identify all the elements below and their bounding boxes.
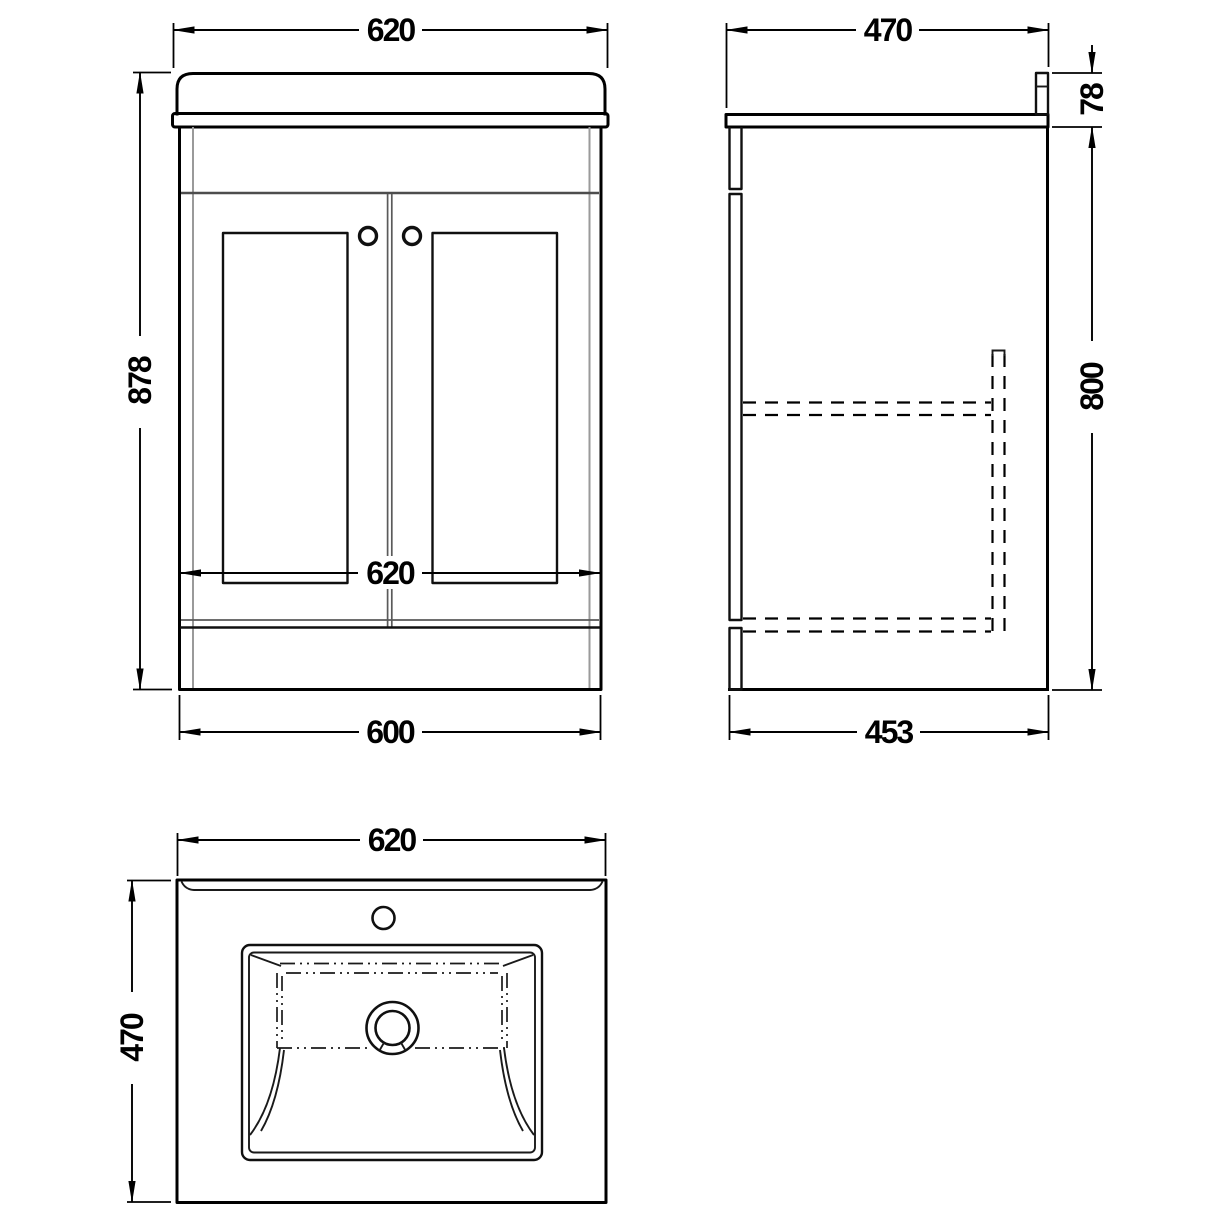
dim-label-plan-width: 620: [368, 822, 417, 858]
dim-label-side-worktop-height: 78: [1074, 83, 1110, 116]
side-upstand: [1036, 73, 1048, 115]
front-basin-top: [177, 74, 605, 115]
dim-label-plan-depth: 470: [114, 1013, 150, 1062]
dim-plan-depth: 470: [114, 881, 171, 1203]
technical-drawing-canvas: 620 878 620 600: [0, 0, 1224, 1224]
tap-hole: [373, 907, 395, 929]
dim-label-front-top-width: 620: [367, 12, 416, 48]
side-door-strip: [730, 194, 742, 620]
plan-view: 620 470: [114, 822, 606, 1203]
dim-label-front-height: 878: [122, 356, 158, 405]
plan-front-lip-line: [182, 882, 603, 891]
dim-label-front-mid-width: 620: [366, 555, 415, 591]
dim-label-side-cabinet-height: 800: [1074, 362, 1110, 411]
dim-label-side-top-depth: 470: [864, 12, 913, 48]
vanity-drawing: 620 878 620 600: [0, 0, 1224, 1224]
right-door-knob: [404, 228, 421, 245]
side-worktop: [726, 115, 1048, 128]
side-plinth-strip: [730, 628, 742, 690]
front-right-door-panel: [433, 233, 558, 583]
dim-plan-width: 620: [178, 822, 606, 876]
basin-inner-rim: [249, 953, 535, 1153]
side-view: 470 78 800 453: [726, 12, 1110, 750]
dim-front-height: 878: [122, 73, 172, 690]
dim-side-worktop-height: 78: [1052, 45, 1110, 127]
dim-label-front-base-width: 600: [366, 714, 415, 750]
front-cabinet-outline: [180, 127, 602, 690]
dim-label-side-base-depth: 453: [865, 714, 914, 750]
dim-front-mid-width: 620: [180, 555, 600, 591]
side-hidden-bottom: [743, 619, 991, 632]
dim-front-base-width: 600: [180, 695, 601, 750]
front-left-door-panel: [223, 233, 348, 583]
front-counter-lip: [173, 114, 609, 128]
side-hidden-shelf: [743, 403, 991, 416]
side-front-frame-strip: [730, 127, 742, 189]
basin-waste-drain: [367, 1002, 419, 1054]
left-door-knob: [360, 228, 377, 245]
dim-side-base-depth: 453: [730, 695, 1049, 750]
dim-side-cabinet-height: 800: [1052, 127, 1110, 690]
dim-side-top-depth: 470: [727, 12, 1049, 108]
basin-outer-rim: [242, 945, 542, 1160]
front-view: 620 878 620 600: [122, 12, 608, 750]
dim-front-top-width: 620: [174, 12, 608, 68]
side-hidden-back-rail: [993, 351, 1005, 632]
